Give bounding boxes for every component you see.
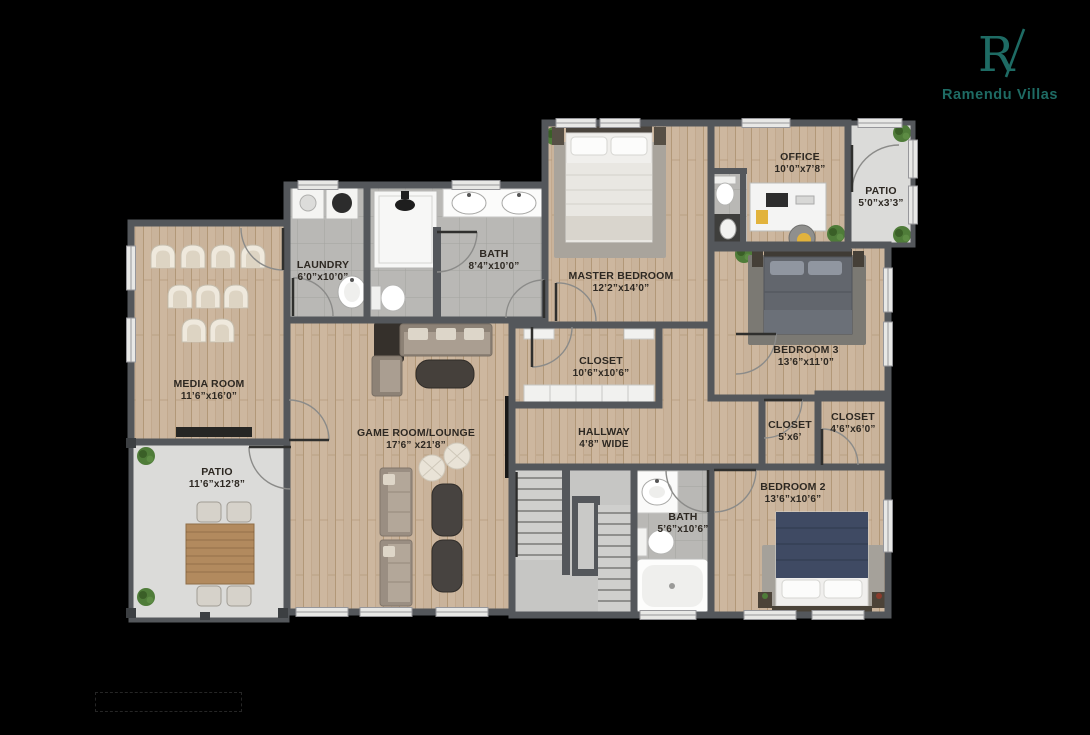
label-office: OFFICE 10’0”x7’8”: [775, 151, 826, 177]
label-patio-left: PATIO 11’6”x12’8”: [189, 466, 245, 492]
room-name: PATIO: [189, 466, 245, 479]
desk-icon: [750, 183, 826, 231]
room-dims: 8’4”x10’0”: [469, 261, 520, 274]
room-dims: 5’0”x3’3”: [858, 198, 903, 211]
bedroom3-bed-icon: [748, 249, 866, 345]
label-bedroom-3: BEDROOM 3 13’6”x11’0”: [773, 344, 838, 370]
label-bath-top: BATH 8’4”x10’0”: [469, 248, 520, 274]
brand-logo: R Ramendu Villas: [930, 26, 1070, 103]
nightstand-icon: [654, 127, 666, 145]
room-name: LAUNDRY: [297, 259, 349, 272]
label-closet-bedroom2: CLOSET 4’6”x6’0”: [830, 411, 875, 437]
room-dims: 11’6”x16’0”: [173, 391, 244, 404]
room-dims: 10’6”x10’6”: [573, 368, 630, 381]
master-bed-icon: [552, 125, 666, 258]
room-dims: 5’6”x10’6”: [658, 524, 709, 537]
room-dims: 13’6”x11’0”: [773, 357, 838, 370]
room-name: BATH: [469, 248, 520, 261]
svg-text:R: R: [978, 27, 1016, 80]
label-master-bedroom: MASTER BEDROOM 12’2”x14’0”: [569, 270, 674, 296]
room-dims: 4’8” WIDE: [578, 439, 630, 452]
room-name: MEDIA ROOM: [173, 378, 244, 391]
brand-monogram-icon: R: [968, 26, 1032, 80]
room-dims: 6’0”x10’0”: [297, 272, 349, 285]
room-name: BATH: [658, 511, 709, 524]
label-laundry: LAUNDRY 6’0”x10’0”: [297, 259, 349, 285]
coffee-table-icon: [416, 360, 474, 388]
toilet-icon: [371, 285, 405, 311]
room-dims: 13’6”x10’6”: [760, 494, 825, 507]
room-name: BEDROOM 2: [760, 481, 825, 494]
label-bath-bottom: BATH 5’6”x10’6”: [658, 511, 709, 537]
room-name: CLOSET: [573, 355, 630, 368]
label-patio-top-right: PATIO 5’0”x3’3”: [858, 185, 903, 211]
brand-name: Ramendu Villas: [930, 87, 1070, 103]
room-dims: 4’6”x6’0”: [830, 424, 875, 437]
floor-plan-page: MEDIA ROOM 11’6”x16’0” PATIO 11’6”x12’8”…: [0, 0, 1090, 735]
room-name: MASTER BEDROOM: [569, 270, 674, 283]
label-closet-hall: CLOSET 10’6”x10’6”: [573, 355, 630, 381]
floor-title-artifact: [95, 692, 242, 712]
room-dims: 5’x6’: [768, 432, 812, 445]
media-console-icon: [176, 427, 252, 437]
nightstand-icon: [552, 127, 564, 145]
label-bedroom-2: BEDROOM 2 13’6”x10’6”: [760, 481, 825, 507]
nook-vanity-icon: [713, 214, 743, 244]
nook-toilet-icon: [714, 176, 736, 205]
label-game-room: GAME ROOM/LOUNGE 17’6” x21’8”: [357, 427, 475, 453]
floor-plan: [0, 0, 1090, 735]
room-name: OFFICE: [775, 151, 826, 164]
label-media-room: MEDIA ROOM 11’6”x16’0”: [173, 378, 244, 404]
room-name: CLOSET: [830, 411, 875, 424]
shower-icon: [374, 191, 437, 268]
nightstand-icon: [752, 251, 763, 267]
room-name: GAME ROOM/LOUNGE: [357, 427, 475, 440]
nightstand-icon: [853, 251, 864, 267]
room-name: PATIO: [858, 185, 903, 198]
bath-partition-wall: [433, 227, 441, 320]
label-closet-small: CLOSET 5’x6’: [768, 419, 812, 445]
room-name: HALLWAY: [578, 426, 630, 439]
room-name: CLOSET: [768, 419, 812, 432]
bathtub-icon: [636, 559, 709, 613]
room-dims: 10’0”x7’8”: [775, 164, 826, 177]
label-hallway: HALLWAY 4’8” WIDE: [578, 426, 630, 452]
room-name: BEDROOM 3: [773, 344, 838, 357]
room-dims: 17’6” x21’8”: [357, 440, 475, 453]
room-dims: 12’2”x14’0”: [569, 283, 674, 296]
double-vanity-sinks-icon: [443, 189, 547, 217]
room-dims: 11’6”x12’8”: [189, 479, 245, 492]
bedroom2-bed-icon: [758, 512, 886, 614]
